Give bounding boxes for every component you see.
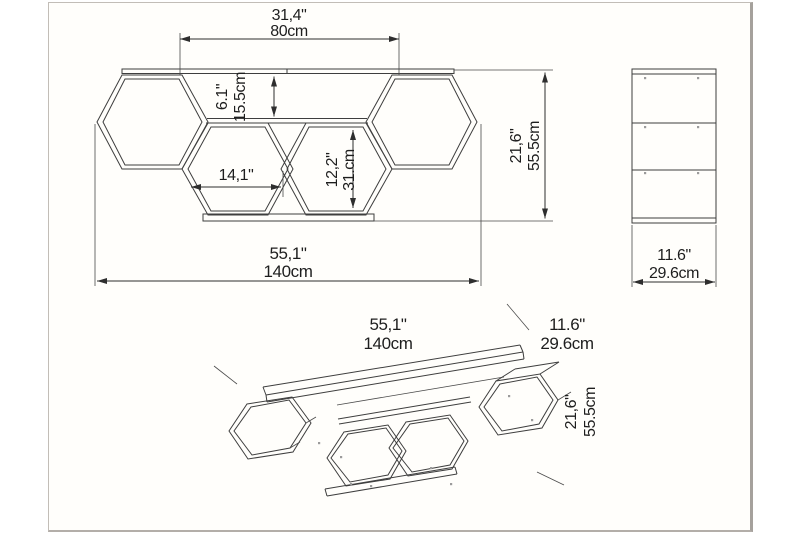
side-depth-inches-label: 11.6" bbox=[657, 247, 691, 264]
dim-front-height: 21,6" 55.5cm bbox=[374, 70, 553, 221]
perspective-view: 55,1" 140cm 11.6" 29.6cm 21,6" 55.5cm bbox=[214, 304, 599, 496]
dim-front-cubby-height: 12,2" 31.cm bbox=[324, 130, 358, 208]
persp-width-inches-label: 55,1" bbox=[369, 315, 406, 334]
side-outline bbox=[632, 69, 716, 223]
front-shelf-top-width-cm-label: 80cm bbox=[270, 23, 308, 40]
front-cubby-width-inches-label: 14,1" bbox=[219, 167, 254, 184]
persp-height-cm-label: 55.5cm bbox=[582, 387, 599, 437]
side-view: 11.6" 29.6cm bbox=[632, 69, 716, 287]
front-height-inches-label: 21,6" bbox=[508, 129, 525, 164]
persp-depth-inches-label: 11.6" bbox=[549, 315, 585, 334]
side-depth-cm-label: 29.6cm bbox=[649, 265, 699, 282]
persp-top-board bbox=[263, 345, 524, 405]
front-top-gap-cm-label: 15.5cm bbox=[232, 72, 249, 122]
furniture-dimension-drawing: 31,4" 80cm 6.1" 15.5cm 14,1" 12,2" 31.cm bbox=[0, 0, 800, 533]
leader-bottom-right bbox=[537, 472, 564, 485]
persp-middle-shelf bbox=[338, 397, 471, 424]
front-cubby-height-cm-label: 31.cm bbox=[341, 149, 358, 191]
dim-front-shelf-top-width: 31,4" 80cm bbox=[180, 7, 399, 75]
front-view: 31,4" 80cm 6.1" 15.5cm 14,1" 12,2" 31.cm bbox=[95, 7, 553, 286]
front-height-cm-label: 55.5cm bbox=[526, 121, 543, 171]
side-screw-marks bbox=[644, 77, 699, 174]
dim-front-width: 55,1" 140cm bbox=[95, 124, 481, 286]
front-top-gap-inches-label: 6.1" bbox=[214, 84, 231, 110]
front-width-inches-label: 55,1" bbox=[269, 244, 306, 263]
front-width-cm-label: 140cm bbox=[263, 262, 312, 281]
front-middle-shelf bbox=[206, 119, 368, 124]
front-left-hexagon bbox=[97, 75, 208, 169]
persp-width-cm-label: 140cm bbox=[363, 334, 412, 353]
leader-left bbox=[214, 366, 237, 384]
dim-side-depth: 11.6" 29.6cm bbox=[632, 225, 716, 287]
front-right-hexagon bbox=[366, 75, 477, 169]
persp-height-inches-label: 21,6" bbox=[563, 395, 580, 430]
leader-top-right bbox=[507, 304, 529, 330]
persp-depth-cm-label: 29.6cm bbox=[540, 334, 594, 353]
dim-front-cubby-width: 14,1" bbox=[191, 167, 283, 197]
front-top-board bbox=[122, 69, 454, 74]
front-shelf-top-width-inches-label: 31,4" bbox=[272, 7, 307, 24]
front-cubby-height-inches-label: 12,2" bbox=[324, 153, 341, 188]
persp-middle-right-hexagon bbox=[389, 415, 468, 476]
persp-left-hexagon bbox=[229, 397, 316, 459]
dim-front-top-gap: 6.1" 15.5cm bbox=[214, 72, 274, 122]
persp-right-hexagon bbox=[479, 362, 571, 435]
drawing-sheet: 31,4" 80cm 6.1" 15.5cm 14,1" 12,2" 31.cm bbox=[0, 0, 800, 533]
